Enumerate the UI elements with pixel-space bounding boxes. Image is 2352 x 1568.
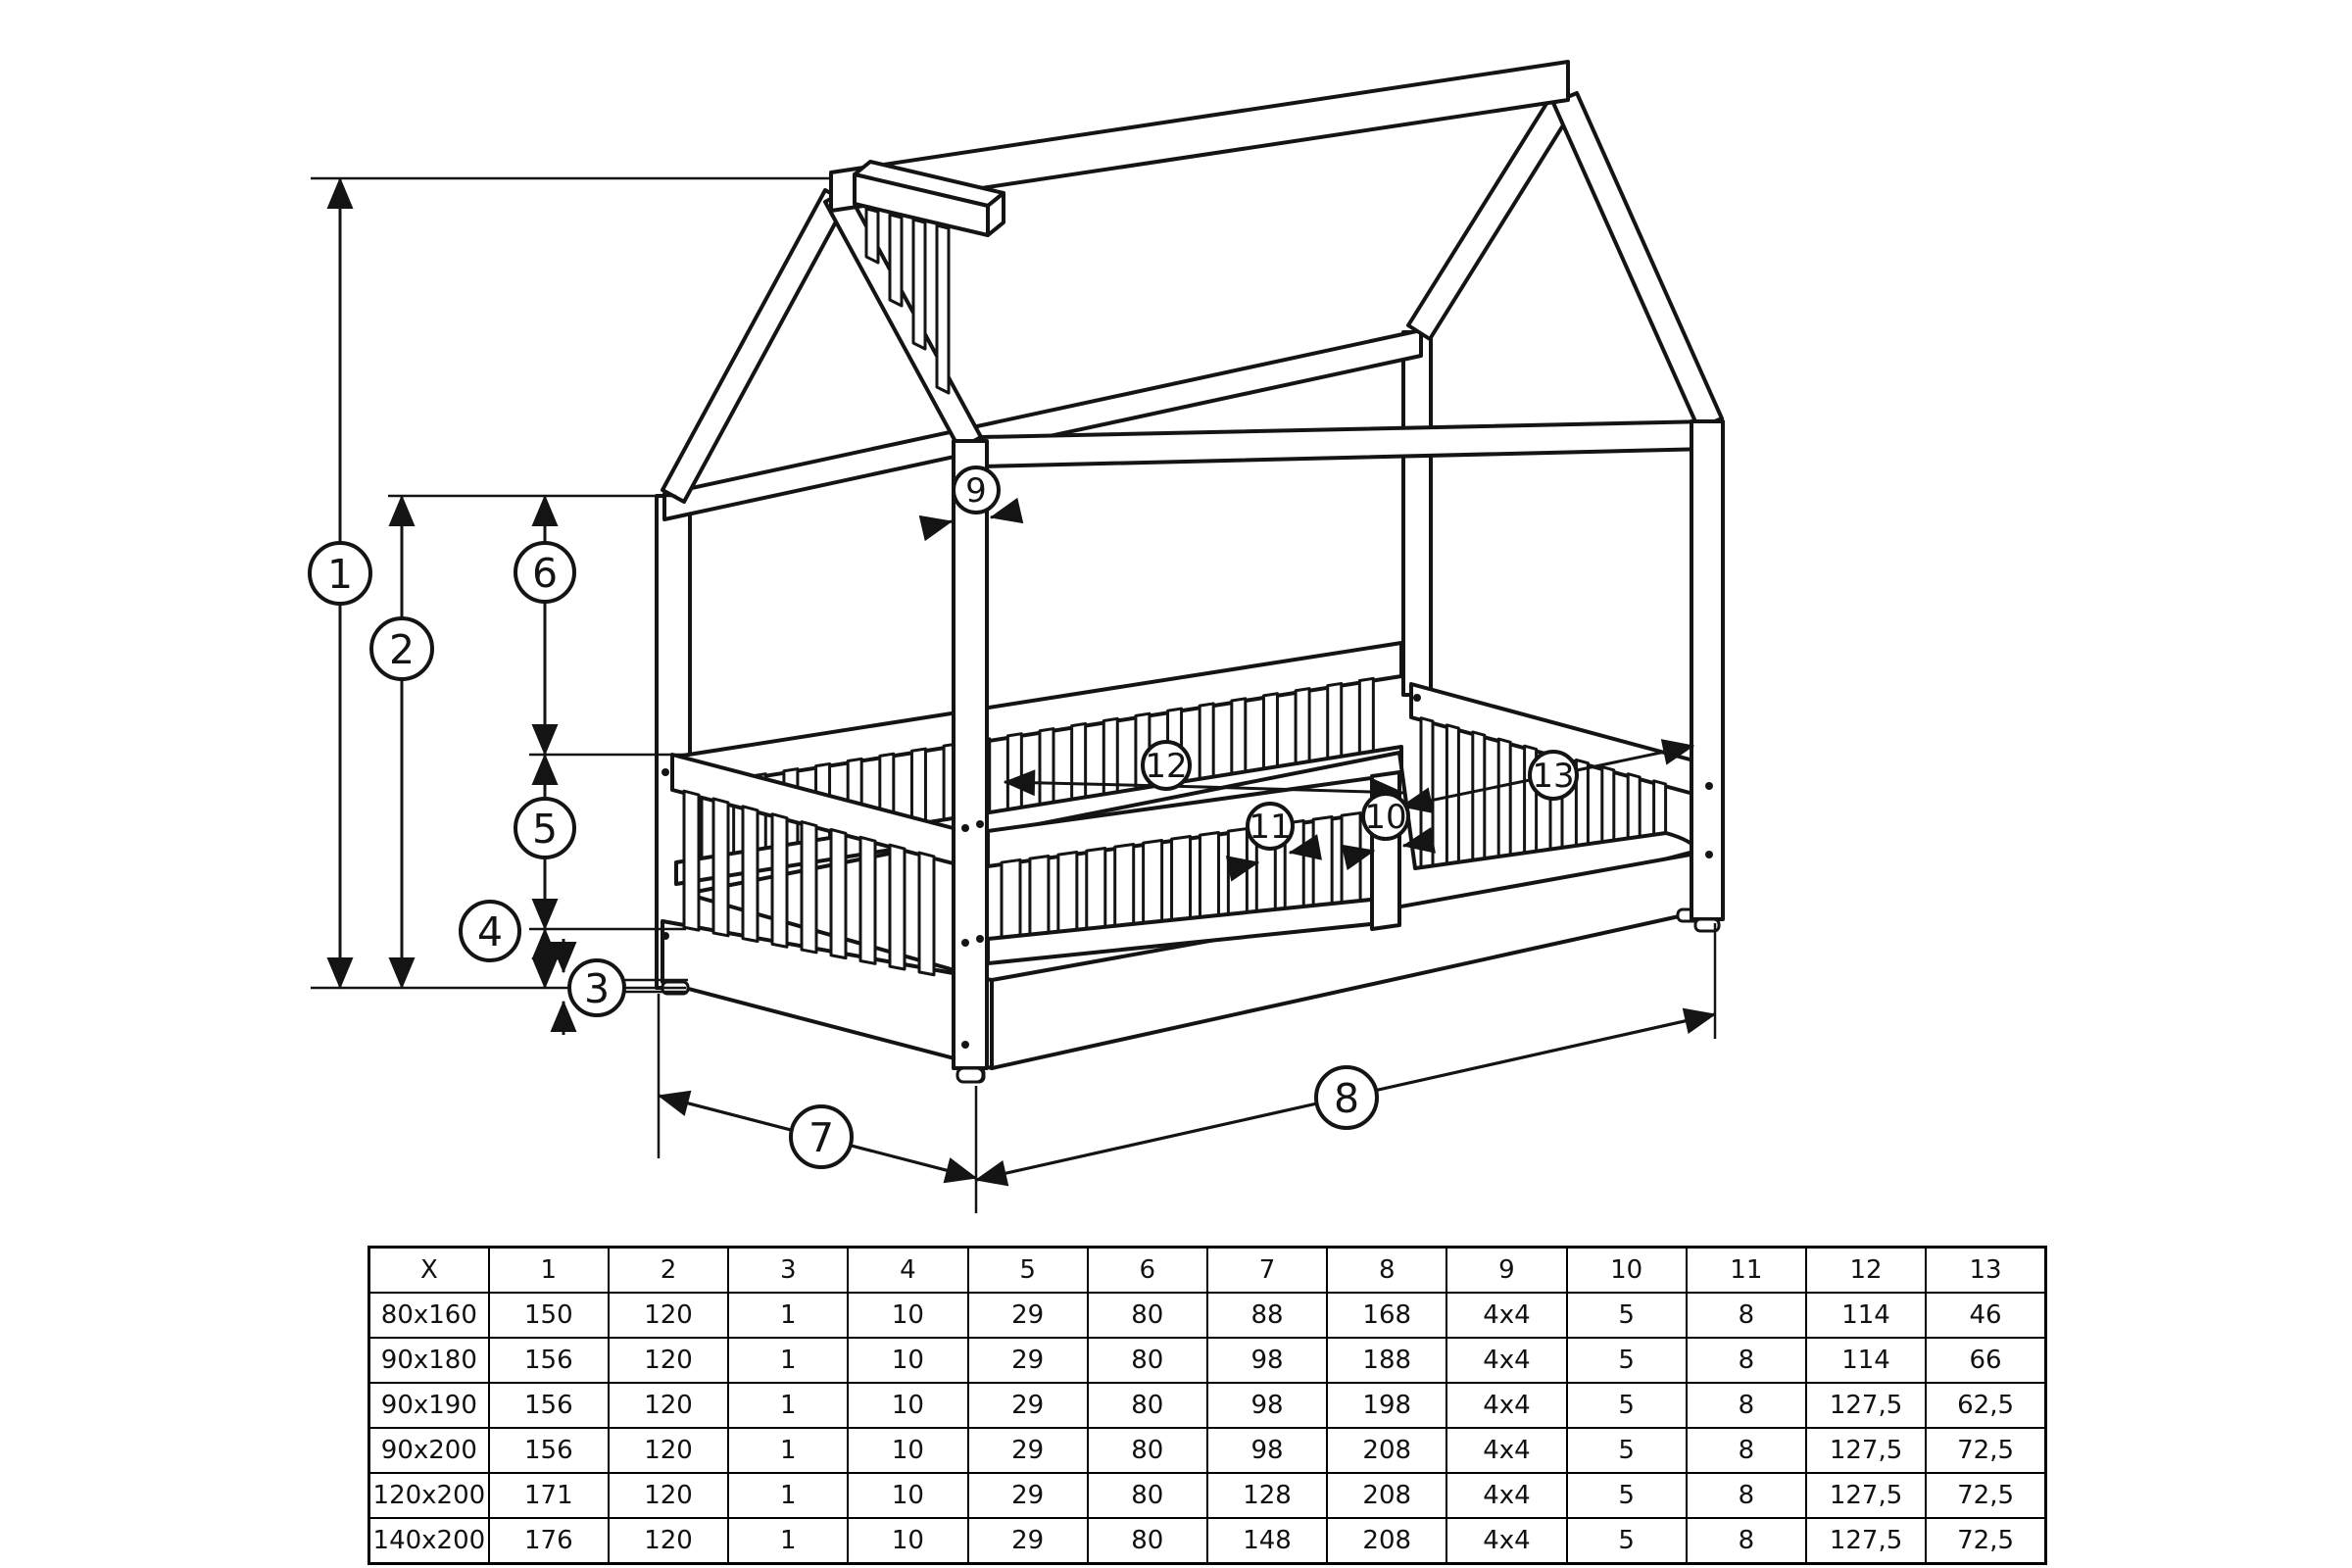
callout-12: 12 (1143, 742, 1190, 789)
table-header-cell: 6 (1088, 1248, 1207, 1294)
table-cell: 8 (1687, 1338, 1806, 1383)
callout-11: 11 (1248, 804, 1293, 849)
table-cell: 128 (1207, 1473, 1327, 1518)
table-cell: 8 (1687, 1293, 1806, 1338)
table-cell: 80 (1088, 1428, 1207, 1473)
rail-slat (1115, 844, 1134, 927)
svg-text:13: 13 (1532, 757, 1574, 796)
table-cell: 127,5 (1806, 1428, 1926, 1473)
table-cell: 127,5 (1806, 1383, 1926, 1428)
table-header-cell: 5 (968, 1248, 1088, 1294)
table-cell: 150 (489, 1293, 609, 1338)
rail-slat (1172, 836, 1191, 921)
table-cell: 80 (1088, 1518, 1207, 1564)
table-cell: 66 (1926, 1338, 2045, 1383)
svg-text:3: 3 (584, 965, 610, 1012)
rail-slat (911, 749, 925, 826)
near-corner-post (954, 441, 987, 1068)
table-cell: 80x160 (369, 1293, 489, 1338)
rail-slat (713, 799, 728, 936)
rail-slat (1058, 852, 1077, 933)
table-cell: 90x190 (369, 1383, 489, 1428)
dimension-table: X12345678910111213 80x160150120110298088… (367, 1246, 2047, 1565)
rail-slat (1072, 723, 1086, 801)
table-cell: 10 (848, 1293, 967, 1338)
rail-slat (1628, 774, 1640, 841)
table-cell: 29 (968, 1428, 1088, 1473)
table-cell: 156 (489, 1338, 609, 1383)
table-header-cell: 8 (1327, 1248, 1446, 1294)
callout-4: 4 (461, 902, 519, 960)
table-cell: 5 (1567, 1518, 1687, 1564)
table-cell: 10 (848, 1428, 967, 1473)
table-header-row: X12345678910111213 (369, 1248, 2046, 1294)
table-cell: 4x4 (1446, 1293, 1566, 1338)
table-cell: 4x4 (1446, 1338, 1566, 1383)
table-cell: 208 (1327, 1428, 1446, 1473)
table-cell: 8 (1687, 1473, 1806, 1518)
table-header-cell: 7 (1207, 1248, 1327, 1294)
table-cell: 5 (1567, 1473, 1687, 1518)
rail-slat (1313, 817, 1332, 907)
table-cell: 72,5 (1926, 1518, 2045, 1564)
rail-slat (1232, 699, 1246, 775)
headboard-slat (890, 215, 902, 306)
table-cell: 90x180 (369, 1338, 489, 1383)
svg-text:8: 8 (1334, 1075, 1359, 1122)
rail-slat (890, 845, 905, 969)
rail-slat (684, 791, 699, 930)
table-cell: 1 (728, 1428, 848, 1473)
table-cell: 80 (1088, 1383, 1207, 1428)
rail-slat (860, 837, 875, 963)
table-row: 90x1801561201102980981884x45811466 (369, 1338, 2046, 1383)
rail-slat (1328, 683, 1342, 759)
table-header-cell: 2 (609, 1248, 728, 1294)
table-cell: 10 (848, 1518, 967, 1564)
table-cell: 4x4 (1446, 1383, 1566, 1428)
rail-slat (1030, 856, 1049, 936)
table-header-cell: 9 (1446, 1248, 1566, 1294)
table-cell: 4x4 (1446, 1428, 1566, 1473)
table-cell: 140x200 (369, 1518, 489, 1564)
rail-slat (1002, 859, 1020, 939)
table-cell: 156 (489, 1428, 609, 1473)
back-eave-beam (664, 330, 1421, 519)
table-cell: 29 (968, 1518, 1088, 1564)
rail-slat (1342, 813, 1360, 905)
svg-text:9: 9 (965, 471, 987, 511)
table-cell: 1 (728, 1473, 848, 1518)
rail-slat (1200, 704, 1213, 781)
table-cell: 29 (968, 1473, 1088, 1518)
svg-text:11: 11 (1249, 808, 1291, 847)
table-cell: 171 (489, 1473, 609, 1518)
svg-text:2: 2 (389, 626, 415, 673)
callout-13: 13 (1530, 752, 1577, 799)
table-cell: 5 (1567, 1293, 1687, 1338)
table-cell: 188 (1327, 1338, 1446, 1383)
bed-structure (657, 62, 1723, 1082)
right-gable-front-rafter (1553, 93, 1722, 428)
rail-slat (1087, 848, 1105, 930)
table-row: 90x1901561201102980981984x458127,562,5 (369, 1383, 2046, 1428)
table-cell: 1 (728, 1383, 848, 1428)
table-header-cell: 3 (728, 1248, 848, 1294)
table-cell: 10 (848, 1383, 967, 1428)
table-cell: 120x200 (369, 1473, 489, 1518)
callout-8: 8 (1316, 1067, 1377, 1128)
table-cell: 72,5 (1926, 1473, 2045, 1518)
near-post-foot (957, 1068, 983, 1082)
table-cell: 5 (1567, 1383, 1687, 1428)
svg-text:7: 7 (808, 1114, 834, 1161)
left-gable-back-rafter (662, 190, 847, 502)
table-cell: 168 (1327, 1293, 1446, 1338)
table-cell: 120 (609, 1518, 728, 1564)
table-cell: 98 (1207, 1428, 1327, 1473)
rail-slat (1263, 694, 1277, 770)
table-cell: 4x4 (1446, 1473, 1566, 1518)
rail-slat (1228, 829, 1247, 916)
table-cell: 120 (609, 1293, 728, 1338)
table-cell: 29 (968, 1338, 1088, 1383)
rail-slat (919, 853, 934, 975)
foot-right-post (1691, 421, 1723, 919)
table-cell: 8 (1687, 1383, 1806, 1428)
callout-6: 6 (515, 543, 574, 602)
rail-slat (831, 829, 846, 957)
table-cell: 114 (1806, 1338, 1926, 1383)
table-header-cell: 10 (1567, 1248, 1687, 1294)
table-cell: 114 (1806, 1293, 1926, 1338)
table-cell: 1 (728, 1293, 848, 1338)
callout-2: 2 (371, 618, 432, 679)
table-cell: 208 (1327, 1518, 1446, 1564)
rail-slat (1040, 729, 1053, 807)
table-cell: 120 (609, 1383, 728, 1428)
table-cell: 5 (1567, 1338, 1687, 1383)
table-row: 90x2001561201102980982084x458127,572,5 (369, 1428, 2046, 1473)
rail-slat (1498, 739, 1510, 857)
table-cell: 10 (848, 1338, 967, 1383)
table-row: 140x20017612011029801482084x458127,572,5 (369, 1518, 2046, 1564)
rail-slat (1007, 734, 1021, 811)
table-cell: 5 (1567, 1428, 1687, 1473)
callout-9: 9 (954, 467, 999, 513)
headboard-slat (913, 220, 925, 349)
table-head: X12345678910111213 (369, 1248, 2046, 1294)
rail-slat (1200, 833, 1218, 919)
table-cell: 120 (609, 1338, 728, 1383)
table-row: 80x1601501201102980881684x45811446 (369, 1293, 2046, 1338)
table-cell: 72,5 (1926, 1428, 2045, 1473)
right-gable-back-rafter (1408, 91, 1576, 339)
table-cell: 148 (1207, 1518, 1327, 1564)
page: 1 2 3 4 5 6 7 8 (0, 0, 2352, 1568)
callout-1: 1 (310, 543, 370, 604)
callout-3: 3 (569, 960, 624, 1015)
svg-text:10: 10 (1364, 798, 1406, 837)
table-cell: 198 (1327, 1383, 1446, 1428)
table-cell: 62,5 (1926, 1383, 2045, 1428)
table-cell: 88 (1207, 1293, 1327, 1338)
headboard-slat (937, 225, 949, 393)
table-cell: 176 (489, 1518, 609, 1564)
table-cell: 1 (728, 1338, 848, 1383)
callout-5: 5 (515, 799, 574, 857)
table-header-cell: 13 (1926, 1248, 2045, 1294)
table-header-cell: 1 (489, 1248, 609, 1294)
table-header-cell: 12 (1806, 1248, 1926, 1294)
rail-slat (1421, 718, 1433, 867)
table-header-cell: 4 (848, 1248, 967, 1294)
table-cell: 98 (1207, 1383, 1327, 1428)
table-cell: 80 (1088, 1338, 1207, 1383)
table-cell: 80 (1088, 1473, 1207, 1518)
svg-text:6: 6 (532, 550, 558, 597)
table-cell: 120 (609, 1428, 728, 1473)
rail-slat (1296, 689, 1309, 765)
table-cell: 4x4 (1446, 1518, 1566, 1564)
table-cell: 120 (609, 1473, 728, 1518)
table-cell: 156 (489, 1383, 609, 1428)
table-cell: 127,5 (1806, 1473, 1926, 1518)
rail-slat (1144, 840, 1162, 924)
headboard-slat (866, 209, 878, 263)
table-cell: 29 (968, 1383, 1088, 1428)
rail-slat (1602, 767, 1614, 844)
rail-slat (802, 822, 816, 953)
table-cell: 80 (1088, 1293, 1207, 1338)
rail-slat (1359, 678, 1373, 755)
back-post (1403, 332, 1431, 695)
table-cell: 29 (968, 1293, 1088, 1338)
rail-slat (743, 807, 758, 942)
table-cell: 127,5 (1806, 1518, 1926, 1564)
table-cell: 8 (1687, 1518, 1806, 1564)
svg-text:12: 12 (1145, 747, 1187, 786)
callout-7: 7 (791, 1106, 852, 1167)
rail-slat (1473, 732, 1485, 860)
callout-10: 10 (1363, 794, 1408, 839)
svg-text:4: 4 (477, 908, 503, 955)
table-cell: 8 (1687, 1428, 1806, 1473)
table-cell: 208 (1327, 1473, 1446, 1518)
table-header-cell: 11 (1687, 1248, 1806, 1294)
table-cell: 90x200 (369, 1428, 489, 1473)
rail-slat (772, 814, 787, 948)
table-row: 120x20017112011029801282084x458127,572,5 (369, 1473, 2046, 1518)
table-cell: 46 (1926, 1293, 2045, 1338)
svg-text:1: 1 (327, 551, 353, 598)
table-body: 80x1601501201102980881684x4581144690x180… (369, 1293, 2046, 1564)
table-cell: 1 (728, 1518, 848, 1564)
table-cell: 98 (1207, 1338, 1327, 1383)
table-cell: 10 (848, 1473, 967, 1518)
table-header-cell: X (369, 1248, 489, 1294)
rail-slat (1654, 781, 1666, 837)
svg-text:5: 5 (532, 806, 558, 853)
